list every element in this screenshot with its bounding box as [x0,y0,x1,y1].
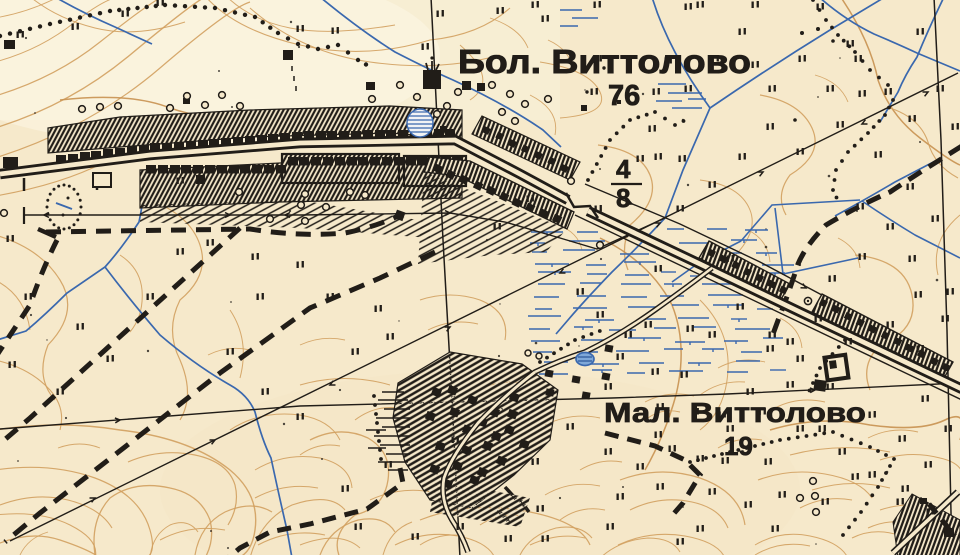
svg-text:19: 19 [724,431,753,461]
svg-text:8: 8 [616,183,630,213]
svg-text:4: 4 [616,154,631,184]
svg-text:Бол. Виттолово: Бол. Виттолово [458,43,751,80]
svg-text:Мал. Виттолово: Мал. Виттолово [604,397,866,428]
svg-text:76: 76 [608,80,640,112]
